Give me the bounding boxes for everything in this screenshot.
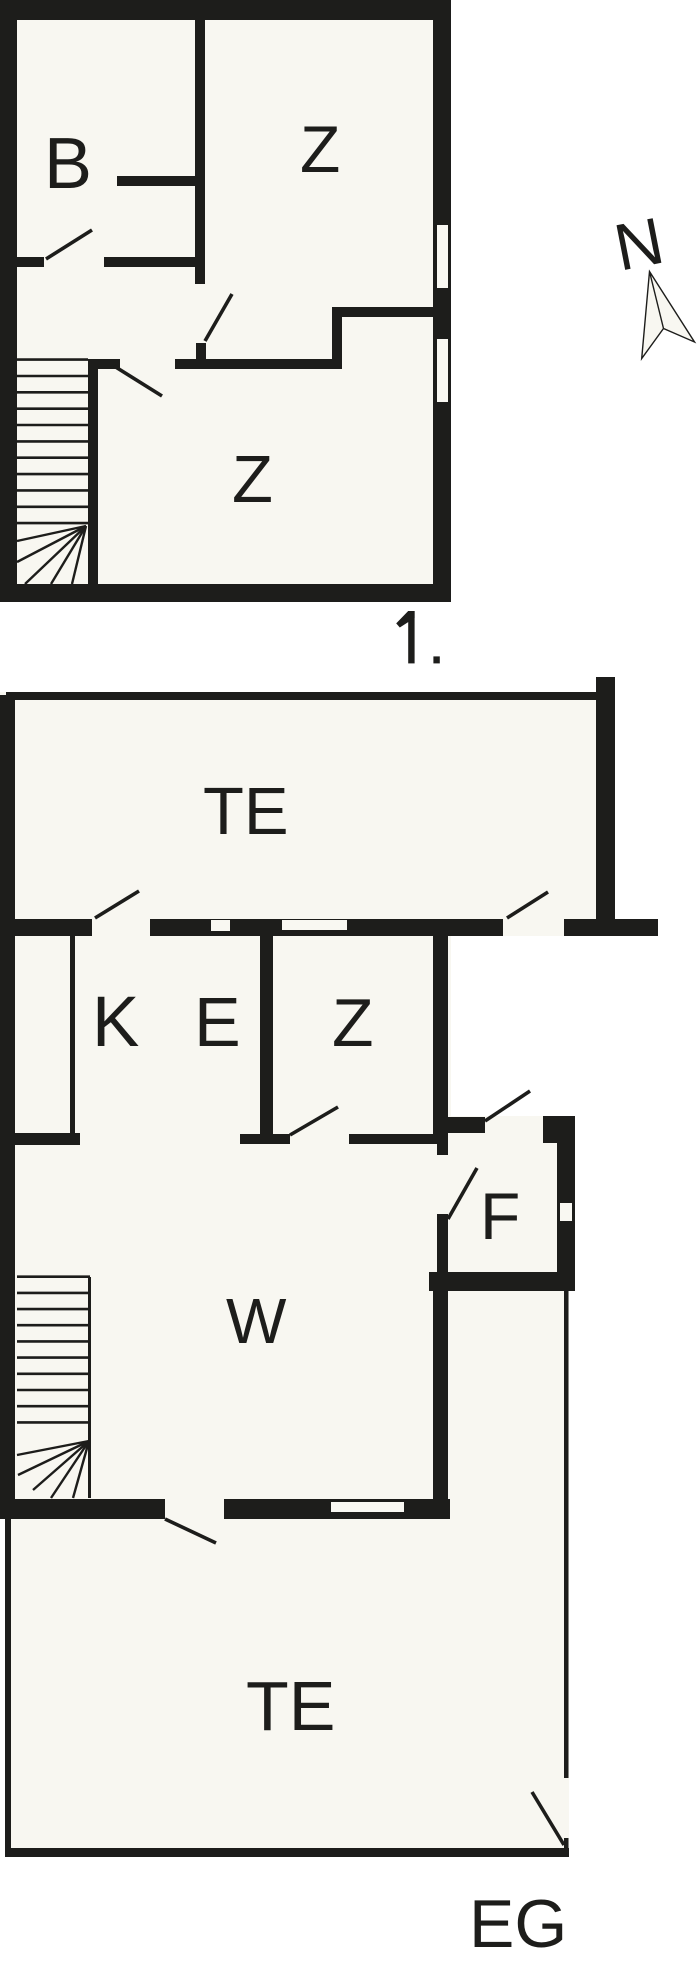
svg-text:EG: EG — [469, 1886, 567, 1962]
svg-text:B: B — [44, 124, 92, 204]
svg-text:K: K — [92, 983, 139, 1062]
svg-text:Z: Z — [332, 985, 374, 1061]
svg-text:TE: TE — [246, 1667, 335, 1745]
svg-text:Z: Z — [300, 112, 340, 186]
svg-text:TE: TE — [203, 774, 289, 849]
svg-text:E: E — [194, 983, 241, 1061]
svg-text:Z: Z — [232, 442, 273, 517]
svg-text:F: F — [480, 1179, 520, 1253]
svg-text:W: W — [226, 1285, 287, 1357]
